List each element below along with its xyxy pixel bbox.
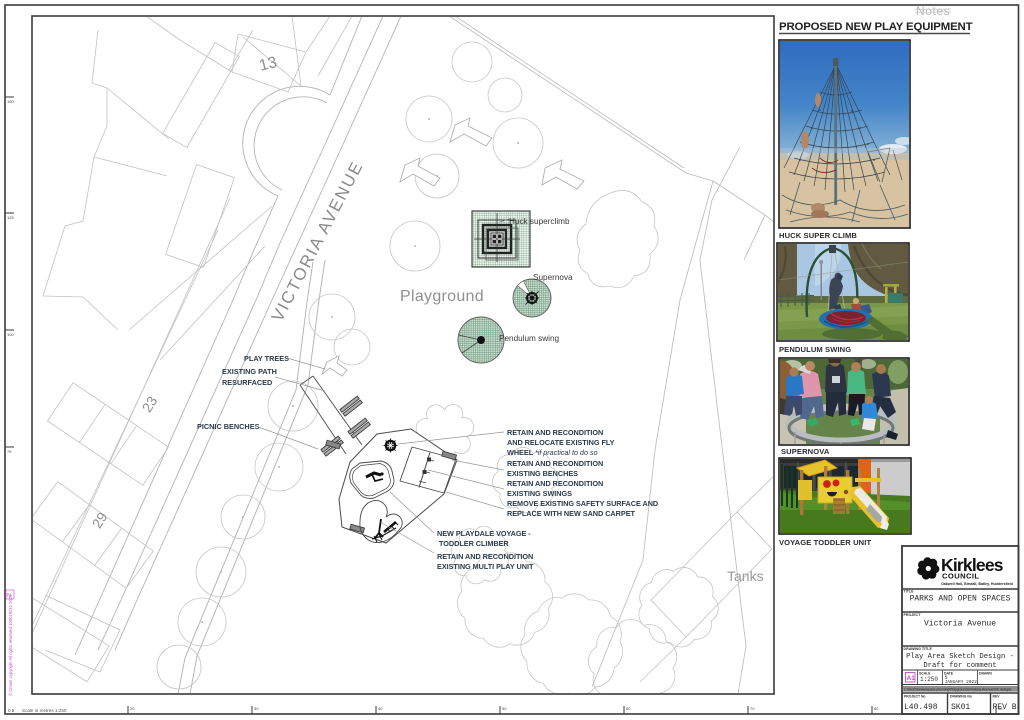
svg-text:40: 40 bbox=[378, 706, 383, 711]
svg-text:PLAY TREES: PLAY TREES bbox=[244, 354, 289, 363]
svg-text:20: 20 bbox=[130, 706, 135, 711]
svg-text:90: 90 bbox=[998, 706, 1003, 711]
svg-text:© Crown copyright All rights r: © Crown copyright All rights reserved 10… bbox=[8, 594, 13, 696]
svg-text:Oakwell Hall, Birstall, Batley: Oakwell Hall, Birstall, Batley, Huddersf… bbox=[941, 582, 1013, 586]
svg-text:REMOVE EXISTING SAFETY SURFACE: REMOVE EXISTING SAFETY SURFACE AND bbox=[507, 499, 658, 508]
svg-text:EXISTING MULTI PLAY UNIT: EXISTING MULTI PLAY UNIT bbox=[437, 562, 534, 571]
svg-text:75: 75 bbox=[7, 449, 12, 454]
svg-text:Scale in metres 1:250: Scale in metres 1:250 bbox=[22, 708, 67, 713]
svg-text:70: 70 bbox=[750, 706, 755, 711]
svg-text:Huck superclimb: Huck superclimb bbox=[509, 217, 570, 226]
svg-text:0 5: 0 5 bbox=[8, 708, 15, 713]
svg-text:150: 150 bbox=[7, 99, 14, 104]
svg-text:RETAIN AND RECONDITION: RETAIN AND RECONDITION bbox=[507, 428, 603, 437]
svg-text:A1: A1 bbox=[907, 675, 916, 682]
svg-text:SCALE: SCALE bbox=[919, 672, 931, 676]
svg-text:PROPOSED NEW PLAY EQUIPMENT: PROPOSED NEW PLAY EQUIPMENT bbox=[779, 21, 973, 33]
svg-text:30: 30 bbox=[254, 706, 259, 711]
svg-text:80: 80 bbox=[874, 706, 879, 711]
svg-text:Draft for comment: Draft for comment bbox=[923, 662, 996, 670]
svg-text:REV: REV bbox=[993, 695, 1001, 699]
svg-text:RETAIN AND RECONDITION: RETAIN AND RECONDITION bbox=[437, 552, 533, 561]
svg-text:Notes: Notes bbox=[916, 4, 950, 18]
svg-text:RETAIN AND RECONDITION: RETAIN AND RECONDITION bbox=[507, 459, 603, 468]
svg-text:RETAIN AND RECONDITION: RETAIN AND RECONDITION bbox=[507, 479, 603, 488]
svg-text:PICNIC BENCHES: PICNIC BENCHES bbox=[197, 422, 260, 431]
svg-text:NEW PLAYDALE VOYAGE -: NEW PLAYDALE VOYAGE - bbox=[437, 529, 531, 538]
svg-text:Tanks: Tanks bbox=[727, 568, 764, 584]
svg-text:REPLACE WITH NEW SAND CARPET: REPLACE WITH NEW SAND CARPET bbox=[507, 509, 636, 518]
svg-text:N: N bbox=[7, 593, 11, 599]
svg-text:AND RELOCATE EXISTING FLY: AND RELOCATE EXISTING FLY bbox=[507, 438, 615, 447]
svg-text:L40.498: L40.498 bbox=[904, 703, 938, 712]
svg-text:EXISTING PATH: EXISTING PATH bbox=[222, 367, 277, 376]
svg-text:Playground: Playground bbox=[400, 288, 484, 305]
svg-text:COUNCIL: COUNCIL bbox=[942, 572, 979, 581]
svg-text:EXISTING BENCHES: EXISTING BENCHES bbox=[507, 469, 578, 478]
svg-text:Pendulum swing: Pendulum swing bbox=[499, 334, 560, 343]
svg-text:RESURFACED: RESURFACED bbox=[222, 378, 272, 387]
svg-text:50: 50 bbox=[502, 706, 507, 711]
svg-text:1:250: 1:250 bbox=[920, 676, 938, 683]
svg-text:PROJECT: PROJECT bbox=[904, 613, 922, 617]
svg-text:SK01: SK01 bbox=[951, 703, 970, 712]
svg-text:Supernova: Supernova bbox=[533, 273, 573, 282]
svg-text:60: 60 bbox=[626, 706, 631, 711]
svg-text:Play Area Sketch Design -: Play Area Sketch Design - bbox=[906, 653, 1014, 661]
svg-text:TODDLER CLIMBER: TODDLER CLIMBER bbox=[439, 539, 509, 548]
svg-text:TITLE: TITLE bbox=[904, 590, 915, 594]
svg-text:DRAWING No: DRAWING No bbox=[950, 695, 972, 699]
svg-text:HUCK SUPER CLIMB: HUCK SUPER CLIMB bbox=[779, 231, 857, 240]
svg-text:JANUARY 2022: JANUARY 2022 bbox=[945, 679, 978, 685]
svg-text:DRAWN: DRAWN bbox=[979, 672, 992, 676]
svg-text:PARKS AND OPEN SPACES: PARKS AND OPEN SPACES bbox=[910, 595, 1011, 604]
svg-text:PENDULUM SWING: PENDULUM SWING bbox=[779, 345, 851, 354]
svg-text:Victoria Avenue: Victoria Avenue bbox=[924, 620, 996, 629]
svg-text:DRAWING TITLE: DRAWING TITLE bbox=[904, 647, 933, 651]
svg-text:100: 100 bbox=[7, 332, 14, 337]
svg-text:EXISTING SWINGS: EXISTING SWINGS bbox=[507, 489, 572, 498]
svg-text:VOYAGE TODDLER UNIT: VOYAGE TODDLER UNIT bbox=[779, 538, 871, 547]
svg-text:SUPERNOVA: SUPERNOVA bbox=[781, 447, 830, 456]
svg-text:125: 125 bbox=[7, 215, 14, 220]
svg-text:PROJECT No: PROJECT No bbox=[904, 695, 925, 699]
svg-text:WHEEL *if practical to do so: WHEEL *if practical to do so bbox=[507, 448, 598, 457]
svg-text:L:\G\GT\Greenspace planning\Pl: L:\G\GT\Greenspace planning\Playgrounds\… bbox=[904, 687, 1012, 691]
